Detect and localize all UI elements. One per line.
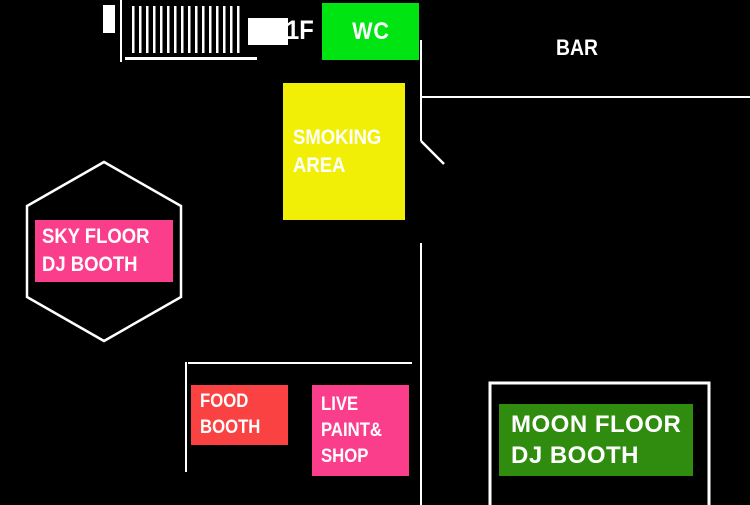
wc-label: WC bbox=[352, 18, 390, 46]
smoking-area: SMOKING AREA bbox=[283, 83, 405, 220]
smoking-area-line2: AREA bbox=[293, 152, 405, 180]
sky-floor-line2: DJ BOOTH bbox=[42, 251, 173, 279]
stairs-hatch-icon bbox=[132, 6, 243, 53]
moon-floor-line2: DJ BOOTH bbox=[511, 440, 693, 471]
food-booth-line1: FOOD bbox=[200, 389, 288, 415]
sky-floor-line1: SKY FLOOR bbox=[42, 223, 173, 251]
stairs-floor-label-text: 1F bbox=[286, 14, 314, 46]
live-paint-shop: LIVE PAINT& SHOP bbox=[312, 385, 409, 476]
bar-label-text: BAR bbox=[556, 36, 598, 60]
venue-floor-map: 1F WC BAR SMOKING AREA SKY FLOOR DJ BOOT… bbox=[0, 0, 750, 505]
moon-floor-line1: MOON FLOOR bbox=[511, 409, 693, 440]
food-booth: FOOD BOOTH bbox=[191, 385, 288, 445]
live-paint-shop-line1: LIVE bbox=[321, 392, 409, 418]
pillar-block bbox=[103, 5, 115, 33]
wc-area: WC bbox=[322, 3, 419, 60]
moon-floor-dj-booth: MOON FLOOR DJ BOOTH bbox=[499, 404, 693, 476]
food-booth-line2: BOOTH bbox=[200, 415, 288, 441]
stairs-label-block bbox=[248, 18, 288, 45]
wall-stairs-left bbox=[120, 0, 122, 62]
sky-floor-dj-booth: SKY FLOOR DJ BOOTH bbox=[35, 220, 173, 282]
bar-area-label: BAR bbox=[556, 36, 604, 60]
live-paint-shop-line2: PAINT& bbox=[321, 418, 409, 444]
stairs-underline bbox=[125, 57, 257, 60]
door-swing-icon bbox=[421, 141, 444, 164]
stairs-floor-label: 1F bbox=[286, 14, 318, 46]
smoking-area-line1: SMOKING bbox=[293, 124, 405, 152]
live-paint-shop-line3: SHOP bbox=[321, 444, 409, 470]
